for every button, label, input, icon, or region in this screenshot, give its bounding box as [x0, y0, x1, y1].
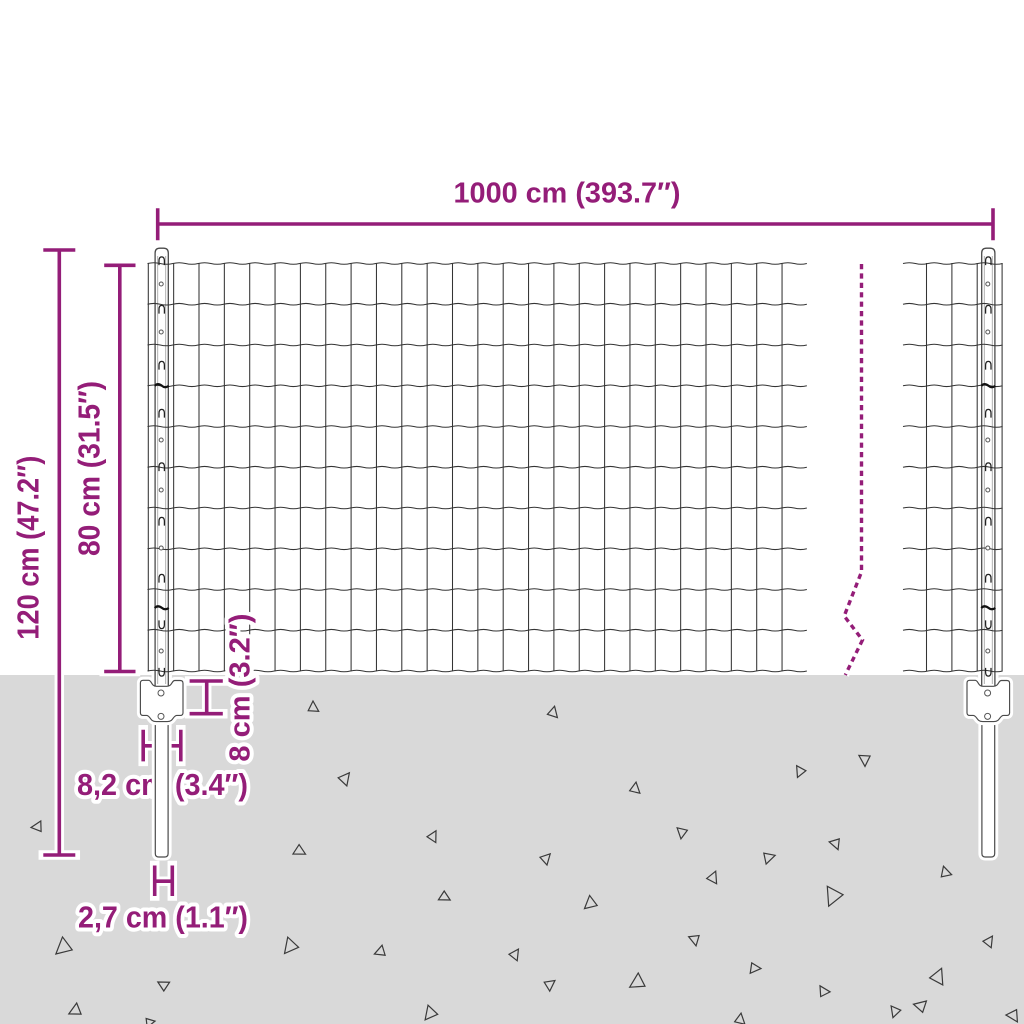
svg-text:2,7 cm (1.1″): 2,7 cm (1.1″) — [78, 901, 248, 935]
svg-text:120 cm (47.2″): 120 cm (47.2″) — [11, 456, 46, 640]
svg-text:8 cm (3.2″): 8 cm (3.2″) — [225, 614, 257, 762]
svg-text:1000 cm (393.7″): 1000 cm (393.7″) — [454, 178, 681, 210]
svg-text:80 cm (31.5″): 80 cm (31.5″) — [72, 381, 107, 556]
